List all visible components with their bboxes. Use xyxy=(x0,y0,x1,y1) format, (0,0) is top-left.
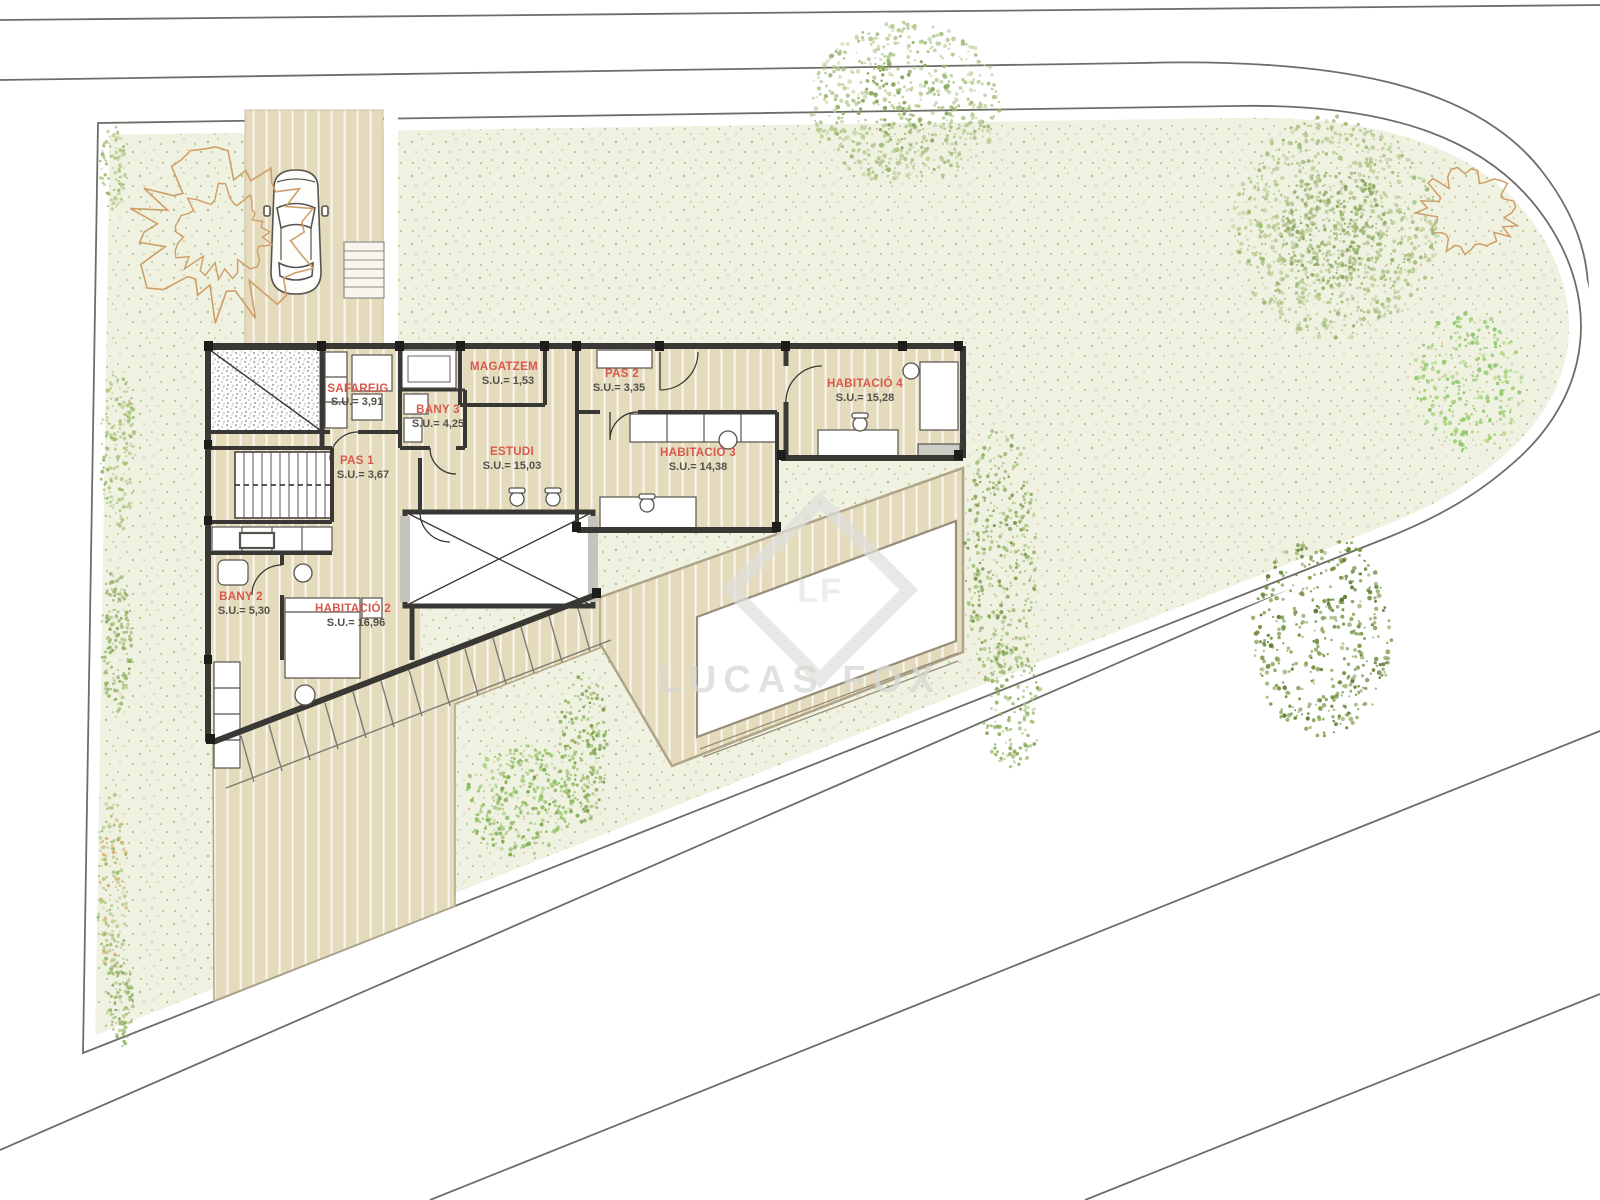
chair-icon xyxy=(545,488,561,506)
chair-icon xyxy=(639,494,655,512)
room-label: SAFAREIG xyxy=(327,383,388,395)
room-label: BANY 3 xyxy=(416,404,460,416)
exterior-steps xyxy=(344,242,384,298)
watermark-monogram: LF xyxy=(797,572,843,610)
wall-light xyxy=(294,564,312,582)
room-label: MAGATZEM xyxy=(470,361,538,373)
entry-path xyxy=(384,110,398,348)
room-label: BANY 2 xyxy=(219,591,263,603)
chair-icon xyxy=(852,413,868,431)
room-area: S.U.= 5,30 xyxy=(218,605,270,617)
site-plan-drawing: LF LUCAS FOX SAFAREIG S.U.= 3,91 BANY 3 … xyxy=(0,0,1600,1200)
room-label: PAS 1 xyxy=(340,455,374,467)
room-label: HABITACIÓ 4 xyxy=(827,377,903,390)
room-area: S.U.= 4,25 xyxy=(412,418,464,430)
room-label: HABITACIÓ 2 xyxy=(315,602,391,615)
void-skylight xyxy=(400,512,598,606)
room-area: S.U.= 15,03 xyxy=(483,460,541,472)
chair-icon xyxy=(509,488,525,506)
room-area: S.U.= 15,28 xyxy=(836,392,894,404)
plant-pot xyxy=(295,685,315,705)
interior-stairs xyxy=(235,452,332,518)
room-area: S.U.= 3,91 xyxy=(331,396,383,408)
road-far-edge-top xyxy=(0,5,1600,20)
room-label: ESTUDI xyxy=(490,446,534,458)
site-plan-page: LF LUCAS FOX SAFAREIG S.U.= 3,91 BANY 3 … xyxy=(0,0,1600,1200)
room-area: S.U.= 14,38 xyxy=(669,461,727,473)
room-label: HABITACIÓ 3 xyxy=(660,446,736,459)
room-area: S.U.= 1,53 xyxy=(482,375,534,387)
driveway xyxy=(245,110,398,348)
wall-light xyxy=(903,363,919,379)
room-area: S.U.= 3,67 xyxy=(337,469,389,481)
watermark-brand: LUCAS FOX xyxy=(659,659,942,701)
hatched-porch xyxy=(208,348,322,432)
road-edge-diagonal-b xyxy=(1085,994,1600,1200)
room-area: S.U.= 3,35 xyxy=(593,382,645,394)
room-label: PAS 2 xyxy=(605,368,639,380)
room-area: S.U.= 16,96 xyxy=(327,617,385,629)
